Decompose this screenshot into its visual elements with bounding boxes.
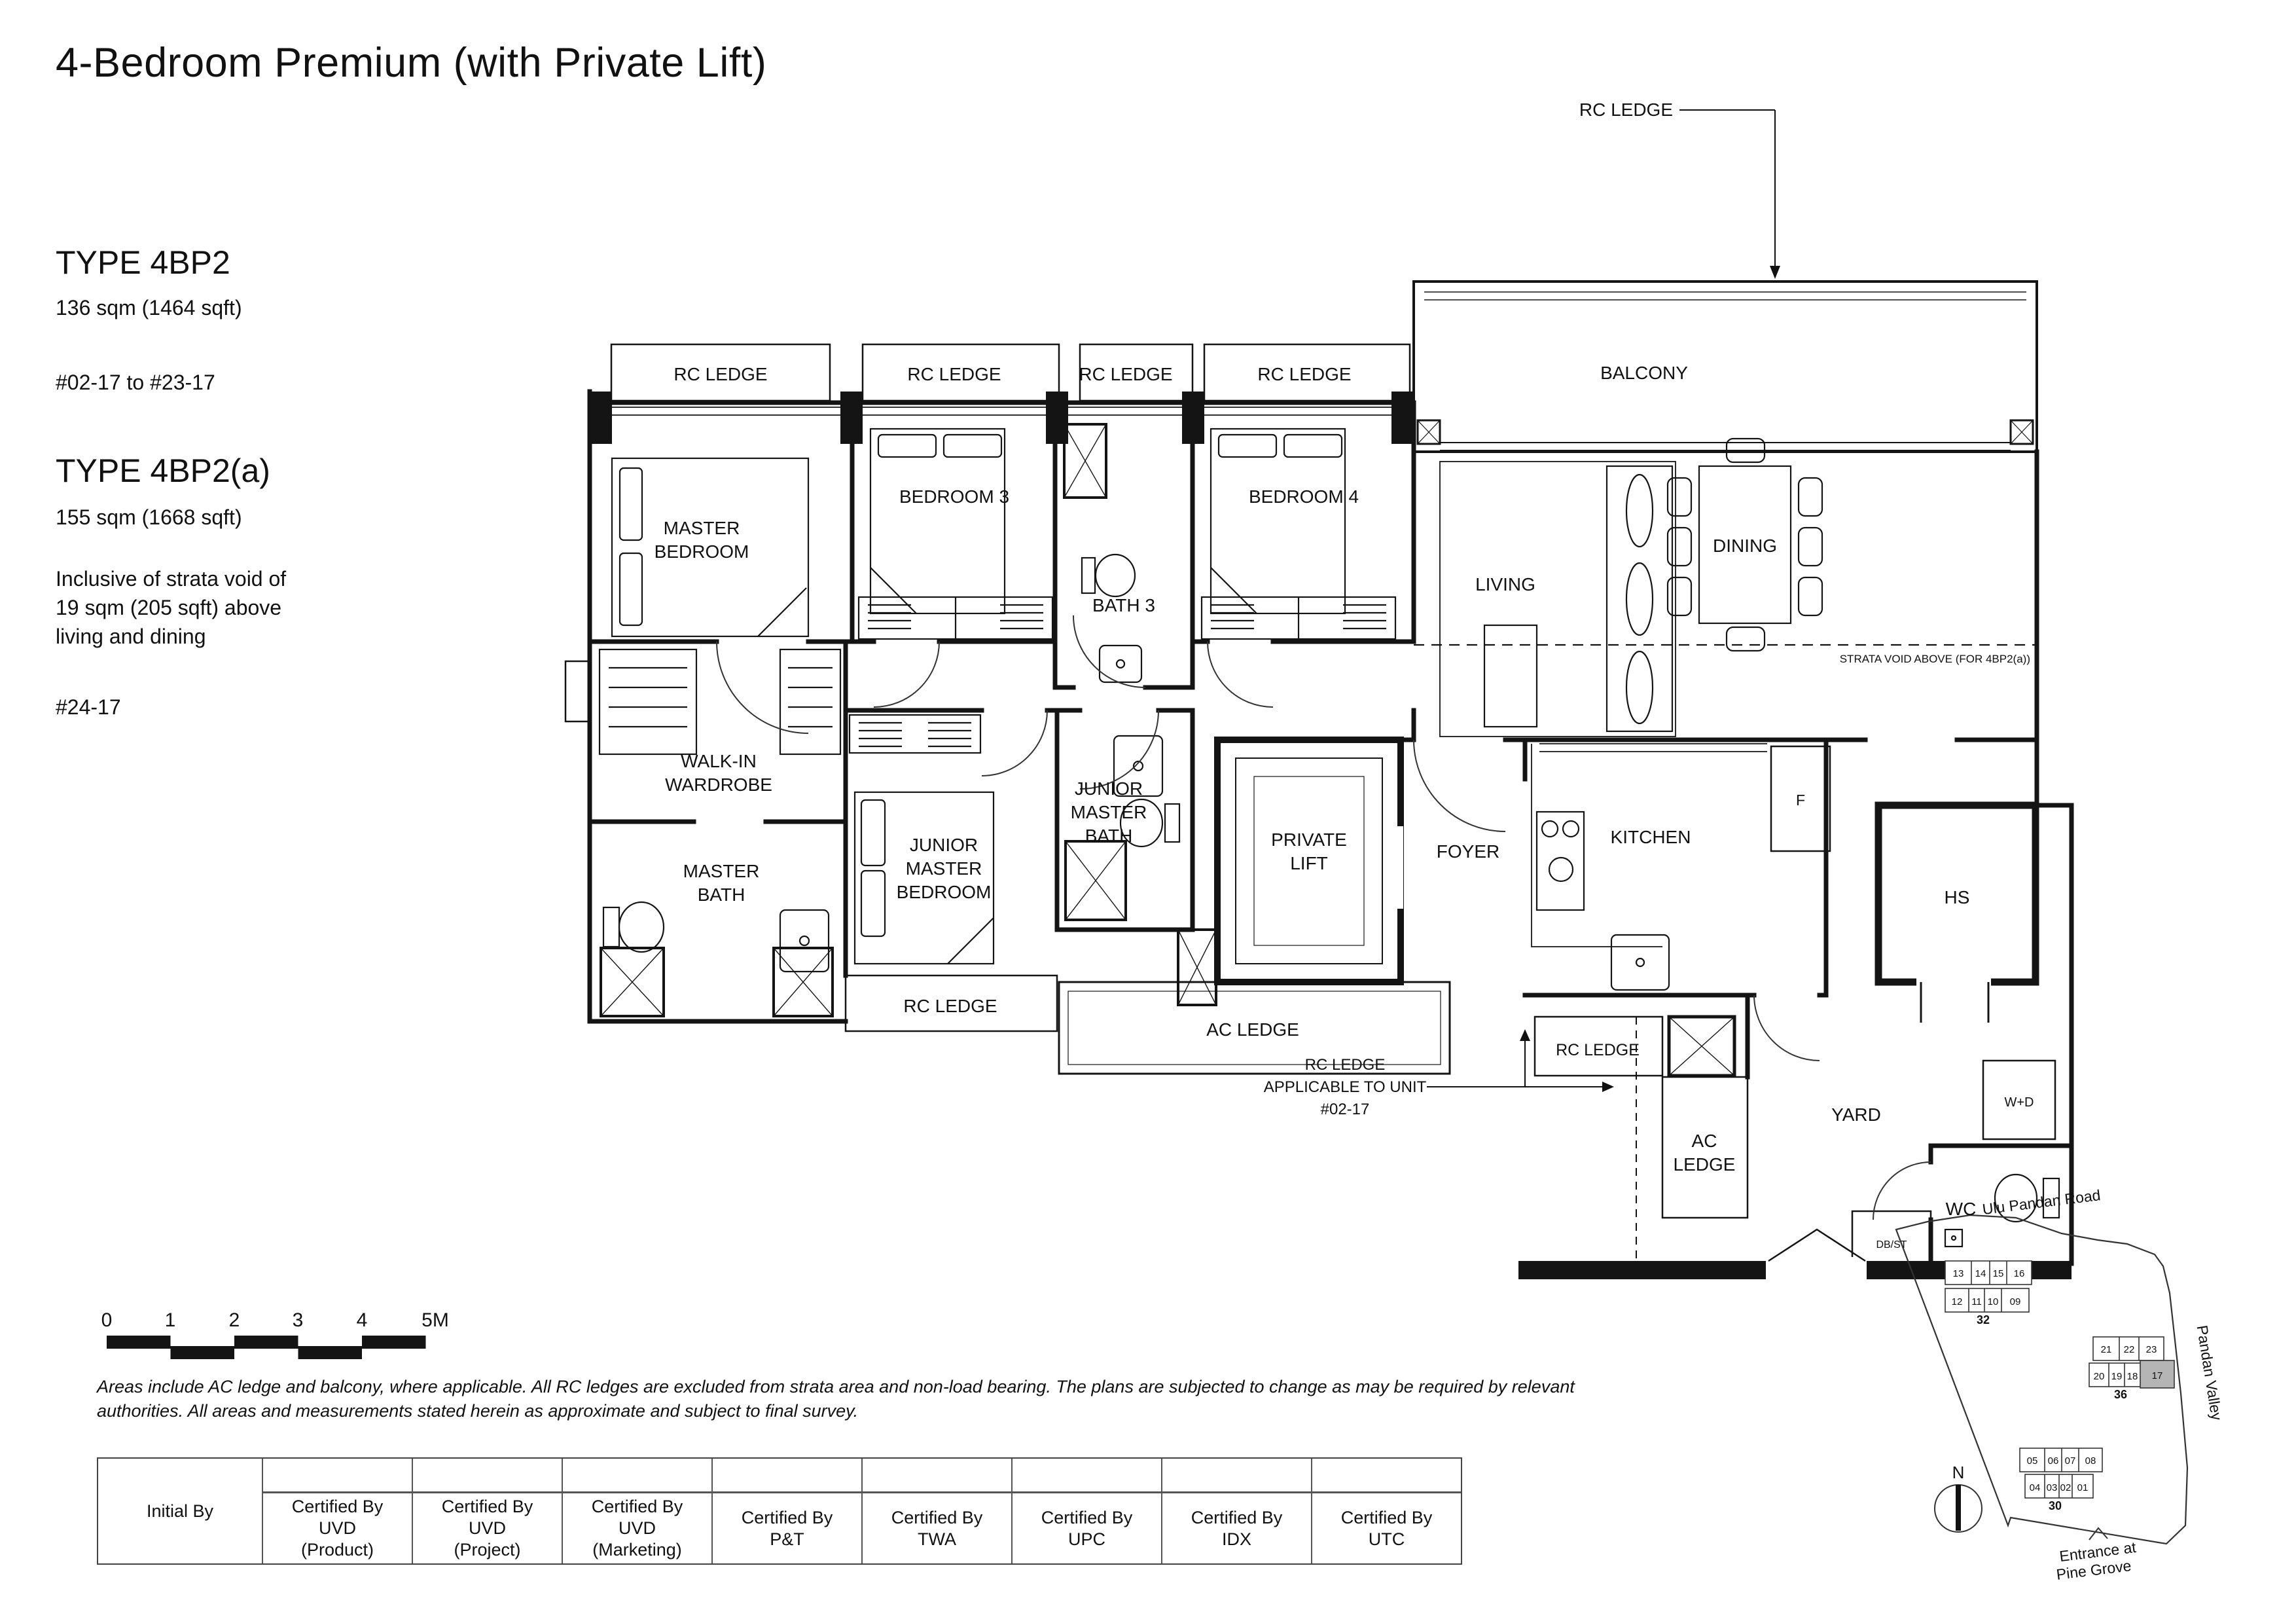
bath3-label: BATH 3 [1092,595,1155,615]
unit-label: 12 [1952,1296,1963,1307]
svg-labels: RC LEDGERC LEDGERC LEDGERC LEDGEBALCONYR… [101,100,2226,1583]
private-lift-label: LIFT [1290,853,1328,873]
floorplan-page: 4-Bedroom Premium (with Private Lift) TY… [0,0,2296,1623]
block-label: 32 [1977,1313,1990,1326]
wall-posts [590,392,1414,444]
household-shelter [1878,805,2036,1023]
unit-label: 02 [2060,1482,2072,1493]
block-label: 30 [2049,1499,2062,1512]
junior-wardrobe [850,715,980,753]
scale-tick: 3 [293,1309,304,1331]
unit-label: 09 [2010,1296,2021,1307]
rc-ledge-strips [565,344,1662,1076]
rc-ledge-callout-label: RC LEDGE [1579,100,1673,120]
master-bedroom-label: BEDROOM [655,541,749,562]
scale-tick: 2 [229,1309,240,1331]
rc-ledge-label: RC LEDGE [1257,364,1351,384]
bedroom3-label: BEDROOM 3 [899,486,1009,507]
doors [717,615,1931,1220]
unit-label: 13 [1953,1268,1964,1279]
master-bath-label: BATH [698,884,745,905]
unit-label: 05 [2027,1455,2038,1467]
unit-label: 14 [1975,1268,1986,1279]
unit-label: 10 [1988,1296,1999,1307]
washer-dryer-label: W+D [2005,1095,2034,1110]
master-bath-label: MASTER [683,861,760,881]
rc-ledge-note: RC LEDGE [1305,1056,1386,1074]
master-bath-fixtures [603,902,829,972]
ac-ledge-label: AC LEDGE [1206,1019,1299,1040]
scale-tick: 0 [101,1309,113,1331]
kitchen-label: KITCHEN [1611,827,1691,847]
balcony-label: BALCONY [1600,363,1688,383]
dbst-label: DB/ST [1876,1239,1907,1250]
scale-tick: 4 [357,1309,368,1331]
rc-ledge-label: RC LEDGE [903,996,997,1016]
walk-in-wardrobe-label: WALK-IN [681,751,757,771]
junior-master-bath-label: MASTER [1071,802,1147,822]
walk-in-wardrobe-label: WARDROBE [665,775,772,795]
junior-master-bath-label: BATH [1085,826,1133,846]
lift-door-opening [1394,826,1403,909]
balcony-structure [1414,282,2037,452]
kitchen-counter [1532,744,1669,990]
unit-label: 16 [2014,1268,2025,1279]
unit-label: 03 [2047,1482,2058,1493]
junior-master-bath-label: JUNIOR [1075,778,1143,799]
unit-label: 07 [2065,1455,2076,1467]
junior-master-bedroom-label: MASTER [906,858,982,879]
bedroom4-label: BEDROOM 4 [1249,486,1359,507]
ac-ledge-label: LEDGE [1674,1154,1736,1175]
bedroom4-wardrobe [1202,597,1395,639]
kitchen-sink [1611,935,1669,990]
rc-ledge-label: RC LEDGE [907,364,1001,384]
shower-boxes [601,424,1734,1076]
scale-tick: 5M [422,1309,449,1331]
strata-void-label: STRATA VOID ABOVE (FOR 4BP2(a)) [1840,653,2030,665]
unit-label: 23 [2146,1344,2157,1355]
bedroom3-wardrobe [859,597,1052,639]
unit-label-highlight: 17 [2152,1370,2163,1381]
junior-master-bedroom-label: BEDROOM [897,882,992,902]
yard-label: YARD [1831,1104,1881,1125]
dining-label: DINING [1713,536,1777,556]
rc-ledge-label: RC LEDGE [673,364,767,384]
unit-label: 01 [2077,1482,2089,1493]
living-furniture [1440,462,1676,737]
unit-label: 04 [2030,1482,2041,1493]
ac-ledge-label: AC [1692,1131,1717,1151]
road-label: Ulu Pandan Road [1981,1186,2101,1218]
unit-label: 21 [2101,1344,2112,1355]
living-label: LIVING [1475,574,1535,594]
road-label: Pandan Valley [2194,1324,2226,1421]
unit-label: 19 [2111,1371,2123,1382]
north-compass [1935,1485,1982,1532]
master-bedroom-label: MASTER [664,518,740,538]
unit-label: 20 [2094,1371,2105,1382]
bedroom4-bed [1211,429,1345,613]
unit-label: 06 [2048,1455,2059,1467]
foyer-label: FOYER [1437,841,1499,862]
hs-label: HS [1945,887,1970,907]
unit-label: 22 [2124,1344,2135,1355]
scale-tick: 1 [165,1309,176,1331]
unit-label: 11 [1971,1296,1982,1307]
scale-bar [107,1336,426,1359]
bedroom3-bed [870,429,1005,613]
private-lift-label: PRIVATE [1271,830,1347,850]
rc-ledge-label: RC LEDGE [1079,364,1172,384]
unit-label: 15 [1993,1268,2004,1279]
rc-ledge-label: RC LEDGE [1556,1041,1640,1059]
fridge-label: F [1796,792,1805,809]
rc-ledge-note: #02-17 [1321,1101,1370,1118]
unit-label: 08 [2085,1455,2096,1467]
walls [590,392,2072,1264]
rc-ledge-note: APPLICABLE TO UNIT [1264,1078,1427,1096]
wc-label: WC [1946,1199,1977,1219]
floorplan-drawing: RC LEDGERC LEDGERC LEDGERC LEDGEBALCONYR… [0,0,2296,1623]
north-label: N [1952,1463,1965,1482]
unit-label: 18 [2127,1371,2138,1382]
block-label: 36 [2114,1388,2127,1401]
junior-master-bedroom-label: JUNIOR [910,835,978,855]
stove [1537,812,1584,910]
